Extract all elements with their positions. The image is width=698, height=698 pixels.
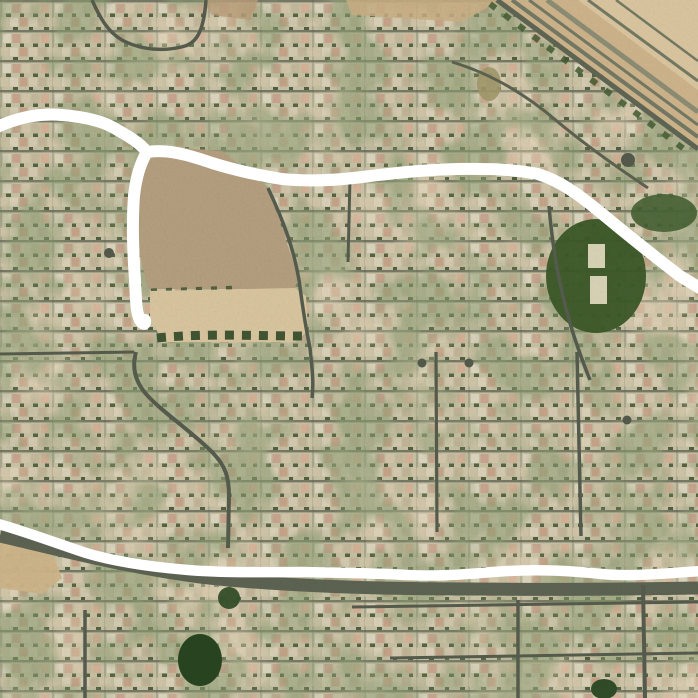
grain-overlay: [0, 0, 698, 698]
satellite-map[interactable]: [0, 0, 698, 698]
screenshot-root: [0, 0, 698, 698]
